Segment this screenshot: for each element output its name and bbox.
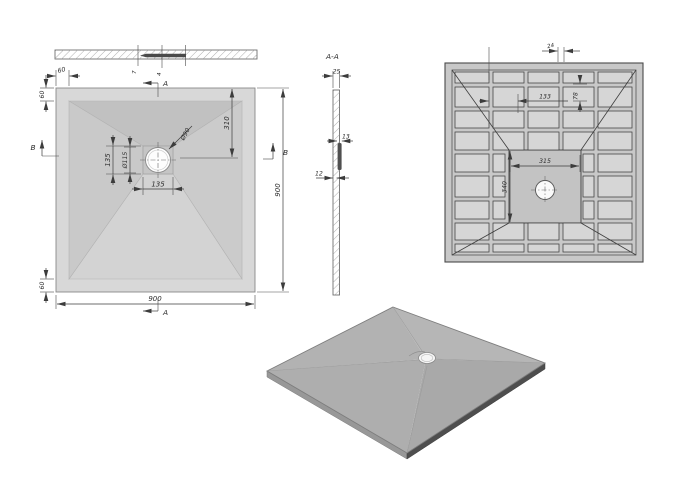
technical-drawing-canvas: 7 4 310 900 900 60 (0, 0, 700, 495)
rib-pocket (528, 244, 559, 252)
rib-pocket (493, 154, 505, 172)
rib-pocket (528, 72, 559, 83)
rib-pocket (455, 87, 489, 107)
rib-pocket (598, 201, 632, 219)
rib-pocket (583, 176, 594, 197)
dim-drain-offset: 310 (223, 116, 231, 130)
dim-drain-flange-dia: Ø115 (121, 152, 129, 170)
drain-boss-section (338, 143, 342, 170)
rib-pocket (583, 154, 594, 172)
dim-plate-thickness: 12 (315, 171, 323, 178)
dim-recess-width: 315 (539, 158, 551, 165)
rib-pocket (563, 244, 594, 252)
rib-pocket (598, 87, 632, 107)
svg-text:A: A (162, 79, 168, 88)
section-title: A-A (325, 52, 339, 61)
dim-drain-recess-width: 135 (151, 181, 165, 189)
rib-pocket (598, 111, 632, 128)
section-arrow-b-left: B (31, 140, 60, 156)
bottom-view: 24 133 78 315 340 (445, 43, 643, 262)
drain-recess-profile (140, 54, 186, 57)
drawing-sheet: 7 4 310 900 900 60 (0, 0, 700, 495)
plan-view: 310 900 900 60 60 60 135 (31, 66, 290, 317)
rib-pocket (528, 132, 559, 150)
isometric-view (267, 307, 545, 459)
rib-pocket (493, 87, 524, 107)
rib-pocket (493, 111, 524, 128)
rib-pocket (563, 132, 594, 150)
edge-depth-dim-2: 4 (157, 72, 163, 76)
dim-drain-recess-height: 135 (104, 153, 112, 167)
dim-flange-top: 60 (57, 66, 66, 75)
dim-rib-span: 133 (539, 94, 551, 101)
rib-pocket (493, 72, 524, 83)
edge-profile-view: 7 4 (55, 45, 257, 76)
rib-pocket (455, 201, 489, 219)
rib-pocket (455, 154, 489, 172)
svg-text:B: B (283, 148, 288, 157)
rib-pocket (493, 223, 524, 240)
dim-rib-gap: 24 (547, 43, 556, 50)
rib-pocket (598, 176, 632, 197)
iso-slope-se (407, 359, 545, 453)
dim-boss-thickness: 13 (342, 134, 350, 141)
dim-recess-height: 340 (502, 181, 509, 193)
rib-pocket (598, 132, 632, 150)
dim-overall-width: 900 (148, 295, 162, 303)
svg-text:B: B (31, 143, 36, 152)
iso-slope-sw (267, 359, 426, 453)
section-arrow-b-right: B (263, 143, 288, 159)
rib-pocket (598, 154, 632, 172)
rib-pocket (493, 244, 524, 252)
rib-pocket (598, 244, 632, 252)
edge-depth-dim-1: 7 (132, 70, 138, 74)
rib-pocket (563, 72, 594, 83)
dim-rim-thickness: 25 (333, 69, 341, 76)
rib-pocket (528, 223, 559, 240)
rib-pocket (598, 72, 632, 83)
rib-pocket (493, 201, 505, 219)
rib-pocket (583, 201, 594, 219)
rib-pocket (455, 111, 489, 128)
rib-pocket (455, 132, 489, 150)
dim-overall-height: 900 (274, 183, 282, 197)
dim-flange-left: 60 (39, 91, 46, 99)
rib-pocket (563, 111, 594, 128)
section-view-aa: A-A 25 13 12 (315, 52, 353, 295)
dim-flange-bottom: 60 (39, 282, 46, 290)
dim-rib-offset: 78 (573, 92, 580, 100)
rib-pocket (455, 176, 489, 197)
rib-pocket (598, 223, 632, 240)
rib-pocket (528, 111, 559, 128)
svg-text:A: A (162, 308, 168, 317)
rib-pocket (563, 223, 594, 240)
